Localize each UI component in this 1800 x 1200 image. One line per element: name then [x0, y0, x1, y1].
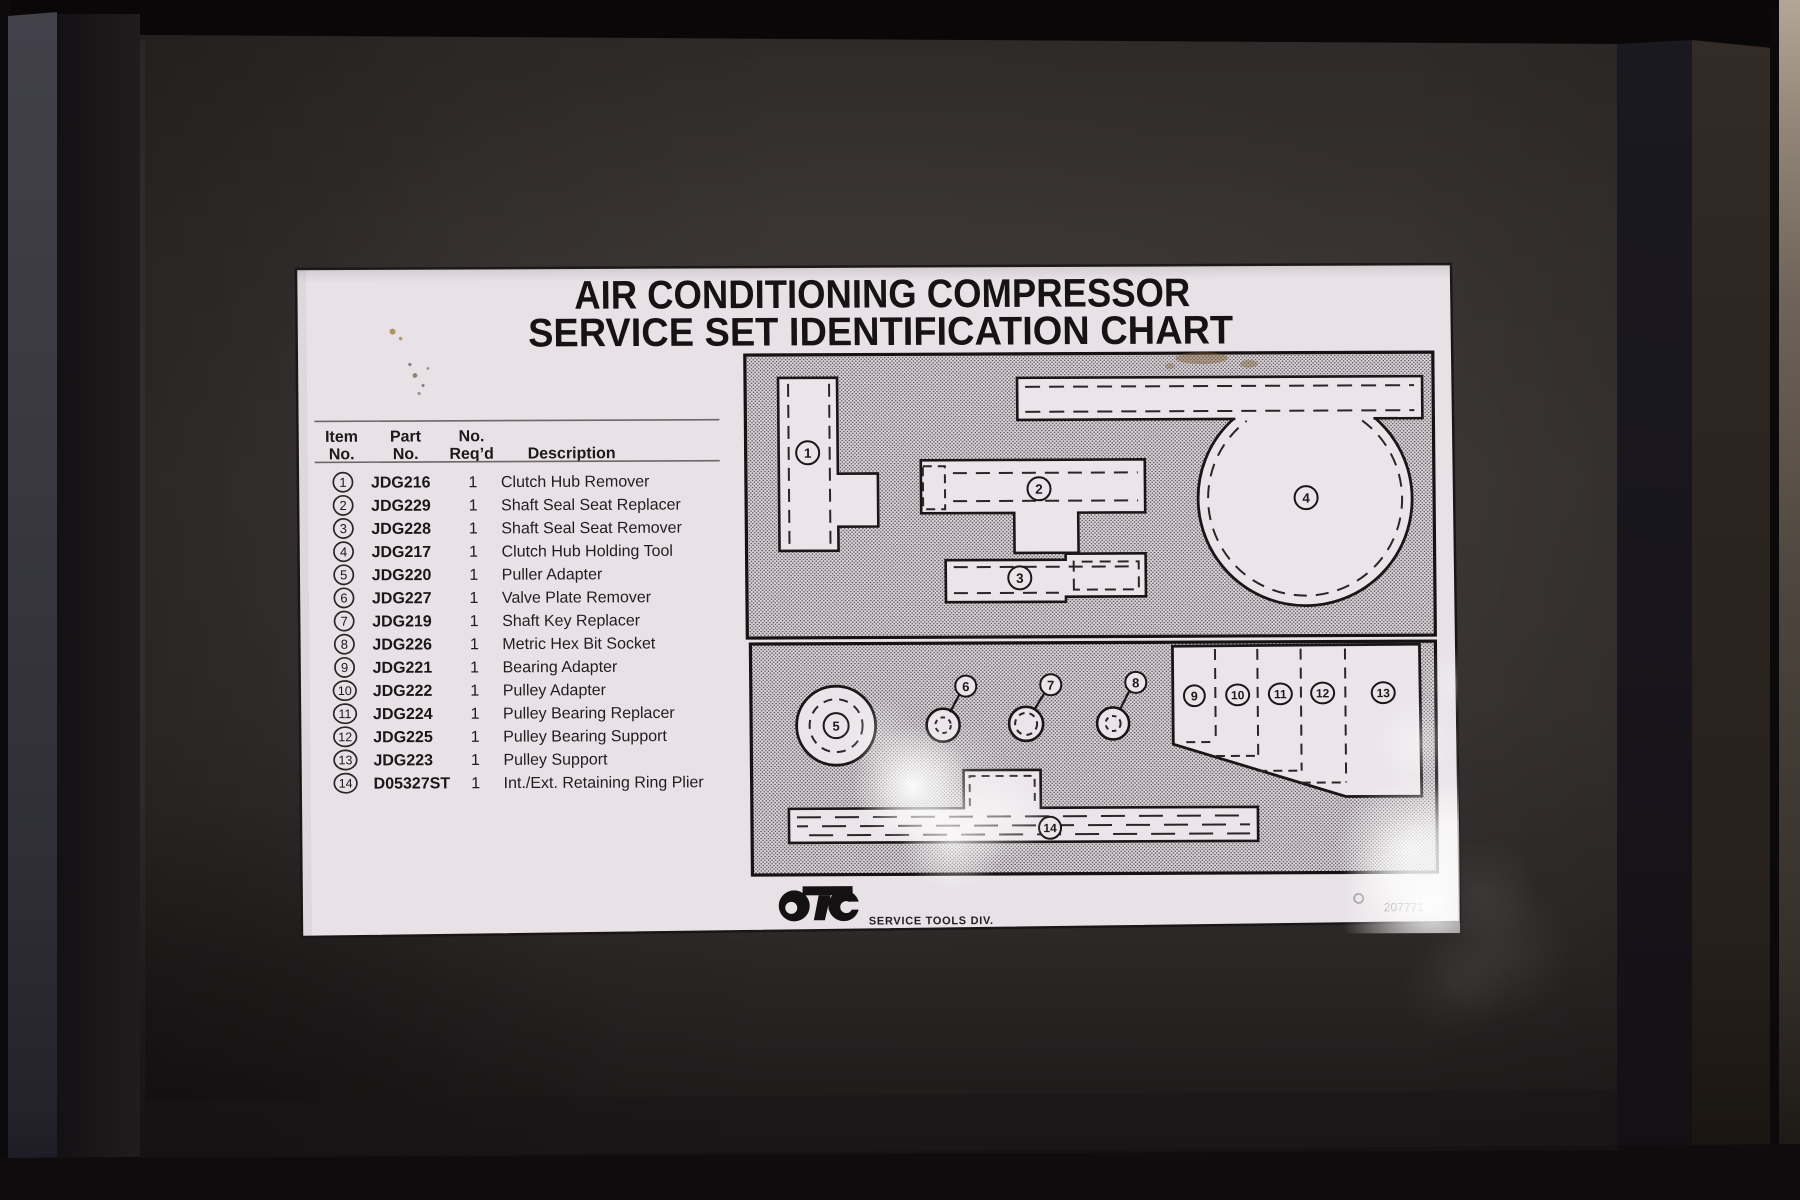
svg-text:SERVICE TOOLS DIV.: SERVICE TOOLS DIV. [869, 915, 994, 928]
svg-text:Item: Item [325, 429, 358, 446]
svg-text:7: 7 [340, 614, 347, 629]
svg-text:Metric Hex Bit Socket: Metric Hex Bit Socket [502, 635, 656, 653]
svg-text:11: 11 [1274, 687, 1287, 701]
svg-text:Shaft Seal Seat Replacer: Shaft Seal Seat Replacer [501, 497, 681, 515]
svg-text:JDG223: JDG223 [373, 752, 433, 769]
svg-text:Pulley Bearing Support: Pulley Bearing Support [503, 728, 667, 746]
svg-text:1: 1 [804, 446, 812, 461]
svg-text:1: 1 [468, 474, 477, 491]
svg-text:7: 7 [1047, 678, 1054, 693]
svg-text:Valve Plate Remover: Valve Plate Remover [502, 589, 652, 607]
svg-text:Pulley Bearing Replacer: Pulley Bearing Replacer [503, 705, 675, 723]
svg-text:JDG216: JDG216 [371, 474, 431, 491]
svg-text:8: 8 [341, 637, 348, 652]
svg-text:9: 9 [341, 660, 348, 675]
svg-text:JDG224: JDG224 [373, 706, 433, 723]
svg-text:1: 1 [471, 729, 480, 746]
svg-text:4: 4 [340, 544, 347, 559]
svg-text:1: 1 [470, 613, 479, 630]
svg-text:Description: Description [528, 445, 616, 462]
svg-text:1: 1 [471, 775, 480, 792]
svg-text:Bearing Adapter: Bearing Adapter [503, 659, 619, 676]
svg-text:JDG222: JDG222 [373, 683, 433, 700]
svg-text:Pulley Support: Pulley Support [503, 751, 608, 768]
svg-text:3: 3 [1016, 571, 1024, 586]
svg-text:1: 1 [470, 636, 479, 653]
svg-text:JDG227: JDG227 [372, 590, 432, 607]
svg-text:1: 1 [469, 567, 478, 584]
svg-text:13: 13 [1377, 686, 1391, 700]
svg-text:JDG229: JDG229 [371, 498, 431, 515]
svg-text:Part: Part [390, 428, 422, 445]
svg-text:No.: No. [459, 428, 485, 445]
svg-text:JDG217: JDG217 [371, 544, 431, 561]
svg-text:2: 2 [339, 498, 346, 513]
svg-text:3: 3 [340, 521, 347, 536]
svg-text:12: 12 [338, 730, 352, 744]
svg-text:Shaft Seal Seat Remover: Shaft Seal Seat Remover [501, 520, 682, 538]
svg-text:1: 1 [339, 475, 346, 490]
svg-text:Clutch Hub Holding Tool: Clutch Hub Holding Tool [501, 543, 673, 561]
svg-text:4: 4 [1302, 491, 1310, 506]
svg-text:JDG219: JDG219 [372, 613, 432, 630]
svg-text:1: 1 [469, 521, 478, 538]
svg-text:10: 10 [338, 684, 352, 698]
svg-text:1: 1 [469, 590, 478, 607]
svg-text:Pulley Adapter: Pulley Adapter [503, 682, 607, 699]
svg-text:1: 1 [470, 706, 479, 723]
svg-text:5: 5 [340, 567, 347, 582]
svg-text:2: 2 [1035, 482, 1043, 497]
svg-text:JDG225: JDG225 [373, 729, 433, 746]
svg-text:8: 8 [1132, 675, 1139, 690]
svg-text:1: 1 [470, 683, 479, 700]
svg-text:Shaft Key Replacer: Shaft Key Replacer [502, 612, 641, 630]
svg-text:6: 6 [340, 590, 347, 605]
svg-text:Puller Adapter: Puller Adapter [502, 566, 603, 583]
svg-text:1: 1 [469, 497, 478, 514]
svg-text:D05327ST: D05327ST [374, 775, 451, 792]
svg-text:JDG220: JDG220 [372, 567, 432, 584]
svg-text:1: 1 [469, 544, 478, 561]
svg-text:JDG221: JDG221 [373, 660, 433, 677]
svg-text:No.: No. [393, 446, 419, 463]
svg-text:JDG228: JDG228 [371, 521, 431, 538]
svg-text:Clutch Hub Remover: Clutch Hub Remover [501, 473, 650, 491]
svg-text:Req’d: Req’d [449, 446, 494, 463]
svg-text:1: 1 [471, 752, 480, 769]
svg-text:Int./Ext. Retaining Ring Plier: Int./Ext. Retaining Ring Plier [504, 774, 705, 792]
svg-text:11: 11 [338, 707, 351, 721]
svg-text:6: 6 [962, 679, 969, 694]
svg-text:1: 1 [470, 659, 479, 676]
svg-text:10: 10 [1231, 688, 1245, 702]
svg-text:14: 14 [339, 777, 353, 791]
svg-text:9: 9 [1191, 689, 1198, 703]
svg-text:JDG226: JDG226 [372, 636, 432, 653]
svg-text:SERVICE SET IDENTIFICATION CHA: SERVICE SET IDENTIFICATION CHART [528, 308, 1233, 355]
svg-text:No.: No. [329, 446, 355, 463]
svg-text:12: 12 [1316, 686, 1330, 700]
svg-text:13: 13 [338, 753, 352, 767]
